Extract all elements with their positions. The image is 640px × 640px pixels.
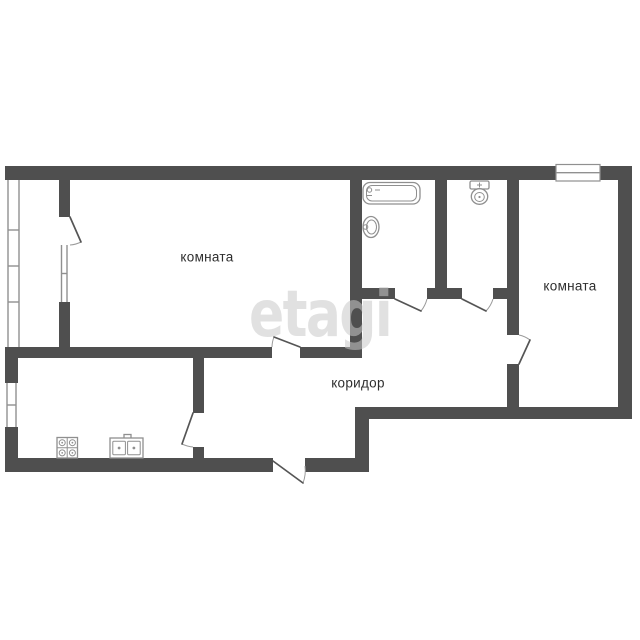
watermark: etagi [249,278,391,352]
wall [193,447,204,458]
wall [427,288,462,299]
toilet-door [462,299,493,311]
wall [355,407,632,419]
bathroom-door [395,299,427,311]
balcony-door [70,217,81,245]
wall [5,166,556,180]
bathtub [363,183,420,205]
wall [435,180,447,288]
wall [193,358,204,413]
room-2-door [519,335,530,364]
wall [59,302,70,347]
wall [507,180,519,335]
floor-plan-drawing: комната комната коридор etagi [0,0,640,640]
balcony-glazing [8,180,19,347]
stove [57,438,78,459]
kitchen-sink [110,435,143,459]
top-right-window [556,165,600,182]
kitchen-door [182,413,193,447]
entrance-door [273,461,305,483]
wash-basin [363,217,379,238]
wall [5,347,272,358]
floor-plan-canvas: комната комната коридор etagi [0,0,640,640]
wall [507,364,519,407]
wall [618,166,632,419]
wall [305,458,369,472]
corridor-label: коридор [331,376,385,391]
wall [59,180,70,217]
toilet [470,181,489,204]
room-1-label: комната [180,250,233,265]
wall [5,458,273,472]
wall [5,427,18,458]
room-2-label: комната [543,279,596,294]
kitchen-window [7,383,16,427]
balcony-room-window [62,245,68,302]
